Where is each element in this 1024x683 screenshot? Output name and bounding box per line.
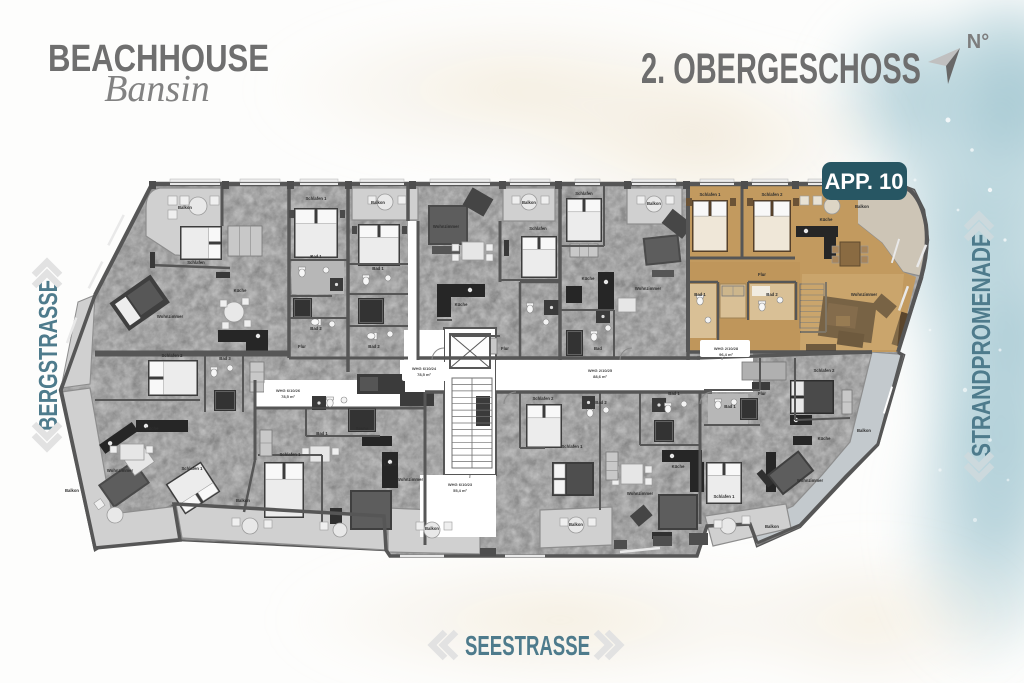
svg-text:Küche: Küche [234,288,247,293]
svg-text:Bad 1: Bad 1 [316,431,328,436]
svg-text:Wohnzimmer: Wohnzimmer [157,314,184,319]
svg-text:Küche: Küche [146,426,159,431]
svg-text:Flur: Flur [758,272,766,277]
svg-text:Wohnzimmer: Wohnzimmer [107,468,134,473]
svg-text:Schlafen: Schlafen [575,191,593,196]
svg-text:Bad 1: Bad 1 [668,391,680,396]
svg-text:Bad 2: Bad 2 [368,344,380,349]
svg-text:Wohnzimmer: Wohnzimmer [397,477,424,482]
svg-text:WHG 2/10/28: WHG 2/10/28 [714,346,739,351]
svg-text:Bad 3: Bad 3 [219,356,231,361]
svg-text:Flur: Flur [758,391,766,396]
svg-text:Wohnzimmer: Wohnzimmer [851,292,878,297]
svg-text:78,5 m²: 78,5 m² [417,372,431,377]
svg-text:Balkon: Balkon [647,201,661,206]
svg-text:WHG 6/10/26: WHG 6/10/26 [276,388,301,393]
svg-text:BERGSTRASSE: BERGSTRASSE [33,279,63,431]
svg-text:Küche: Küche [582,276,595,281]
svg-text:Schlafen: Schlafen [187,260,205,265]
svg-text:Schlafen: Schlafen [529,226,547,231]
svg-text:Bad 1: Bad 1 [372,266,384,271]
svg-text:Schlafen 1: Schlafen 1 [280,452,302,457]
svg-text:Sauna: Sauna [356,426,369,431]
svg-text:Bansin: Bansin [104,68,210,110]
svg-text:Schlafen 1: Schlafen 1 [182,466,204,471]
svg-text:Bad 2: Bad 2 [595,400,607,405]
svg-text:Schlafen 2: Schlafen 2 [762,192,784,197]
svg-text:Balkon: Balkon [236,498,250,503]
svg-text:WHG 2/10/25: WHG 2/10/25 [588,368,613,373]
svg-text:Balkon: Balkon [855,204,869,209]
svg-text:Wohnzimmer: Wohnzimmer [797,478,824,483]
svg-text:Schlafen 2: Schlafen 2 [814,368,836,373]
svg-text:WHG 6/10/23: WHG 6/10/23 [448,482,473,487]
svg-text:Flur: Flur [298,344,306,349]
svg-text:Küche: Küche [455,302,468,307]
svg-text:Wohnzimmer: Wohnzimmer [635,286,662,291]
svg-text:Bad 2: Bad 2 [766,292,778,297]
svg-text:Küche: Küche [672,464,685,469]
svg-text:Bad 1: Bad 1 [694,292,706,297]
svg-text:Bad: Bad [594,346,602,351]
svg-text:Bad 1: Bad 1 [310,254,322,259]
svg-text:Bad 2: Bad 2 [310,326,322,331]
svg-text:Bad 1: Bad 1 [724,404,736,409]
svg-text:96,4 m²: 96,4 m² [719,352,733,357]
svg-text:Schlafen 1: Schlafen 1 [714,494,736,499]
svg-text:Balkon: Balkon [765,524,779,529]
svg-text:Balkon: Balkon [65,488,79,493]
svg-text:Balkon: Balkon [425,526,439,531]
svg-text:Schlafen 1: Schlafen 1 [700,192,722,197]
svg-text:2. OBERGESCHOSS: 2. OBERGESCHOSS [641,45,921,93]
svg-text:Wohnzimmer: Wohnzimmer [627,491,654,496]
svg-text:APP. 10: APP. 10 [824,169,903,194]
svg-text:Küche: Küche [818,436,831,441]
svg-text:Balkon: Balkon [857,428,871,433]
svg-text:Schlafen 1: Schlafen 1 [306,196,328,201]
svg-text:Küche: Küche [820,217,833,222]
svg-text:88,6 m²: 88,6 m² [593,374,607,379]
svg-text:Flur: Flur [501,346,509,351]
svg-text:Wohnzimmer: Wohnzimmer [433,224,460,229]
svg-text:Schlafen 2: Schlafen 2 [162,353,184,358]
svg-text:Küche: Küche [384,462,397,467]
svg-text:Schlafen 1: Schlafen 1 [562,444,584,449]
svg-text:N°: N° [967,31,989,53]
svg-text:SEESTRASSE: SEESTRASSE [465,630,590,661]
svg-text:STRANDPROMENADE: STRANDPROMENADE [966,233,996,457]
svg-text:Balkon: Balkon [371,200,385,205]
svg-text:Balkon: Balkon [569,522,583,527]
svg-text:55,4 m²: 55,4 m² [453,488,467,493]
svg-text:78,5 m²: 78,5 m² [281,394,295,399]
svg-text:Schlafen 2: Schlafen 2 [533,396,555,401]
svg-text:Balkon: Balkon [522,200,536,205]
svg-text:WHG 6/10/24: WHG 6/10/24 [412,366,437,371]
svg-text:Balkon: Balkon [178,205,192,210]
